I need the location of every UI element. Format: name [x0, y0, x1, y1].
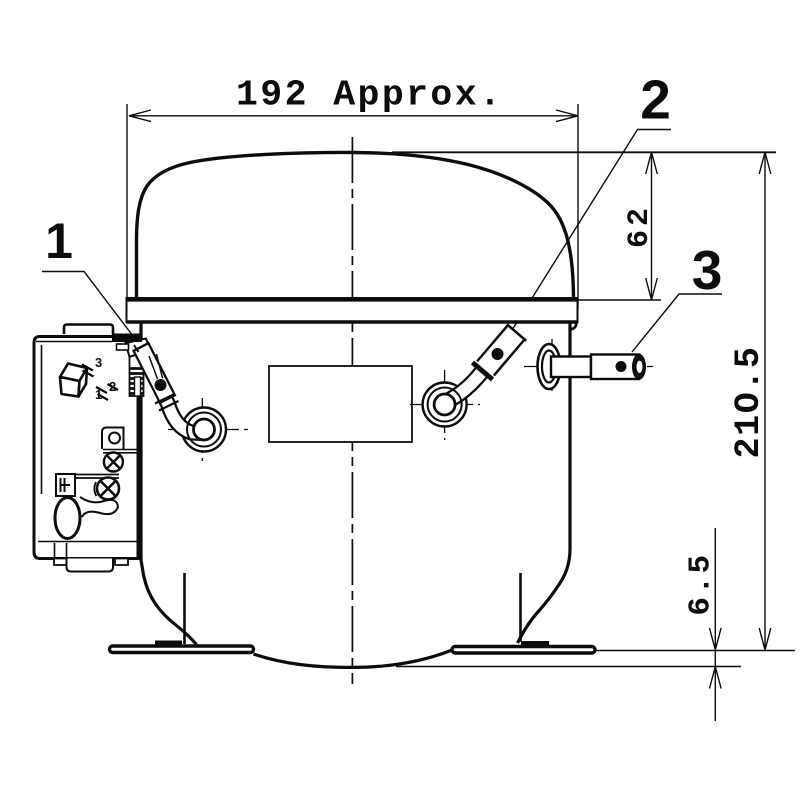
svg-text:3: 3	[692, 239, 723, 301]
svg-text:192 Approx.: 192 Approx.	[236, 75, 503, 116]
svg-text:3: 3	[95, 355, 102, 370]
svg-text:62: 62	[623, 204, 657, 248]
svg-text:21O.5: 21O.5	[729, 345, 769, 458]
svg-text:1: 1	[45, 213, 73, 269]
svg-text:2: 2	[640, 69, 671, 131]
svg-text:6.5: 6.5	[684, 552, 719, 615]
svg-text:2: 2	[109, 379, 116, 394]
svg-text:1: 1	[95, 387, 102, 402]
